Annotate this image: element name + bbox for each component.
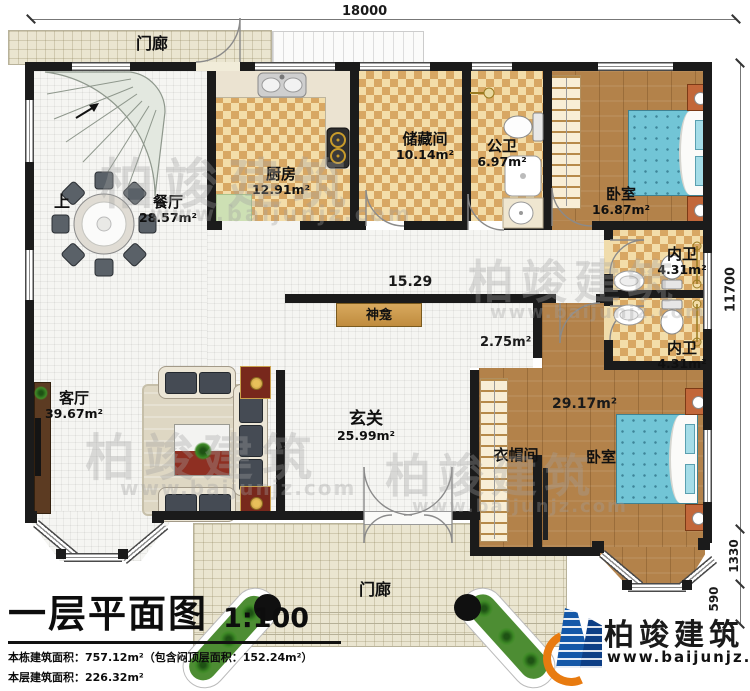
room-label-public-bath: 公卫 6.97m² bbox=[477, 138, 526, 169]
room-label-storage: 储藏间 10.14m² bbox=[396, 131, 454, 162]
dim-top-label: 18000 bbox=[338, 4, 391, 19]
dim-right-label: 11700 bbox=[724, 260, 739, 320]
door-porch-top bbox=[196, 18, 240, 62]
room-label-innerbath-top: 内卫 4.31m² bbox=[657, 246, 706, 277]
floor-plan-canvas: 神龛 bbox=[0, 0, 750, 691]
door-public-bath bbox=[468, 194, 504, 230]
door-entrance-left bbox=[364, 467, 412, 543]
door-entrance-right bbox=[404, 467, 452, 543]
stats-line-2: 本层建筑面积：226.32m² bbox=[8, 669, 353, 685]
public-bath-sink bbox=[503, 198, 543, 228]
room-label-dining: 餐厅 28.57m² bbox=[139, 194, 197, 225]
door-bedroom-top bbox=[552, 188, 592, 226]
door-storage bbox=[366, 190, 404, 226]
corridor-length-dim: 15.29 bbox=[388, 274, 432, 290]
door-bedroom-bottom bbox=[560, 303, 600, 343]
stair-direction-label: 上 bbox=[54, 193, 70, 211]
room-label-bedroom-bottom: 卧室 bbox=[586, 449, 616, 466]
title-underline bbox=[8, 641, 341, 644]
shower-head-icon bbox=[470, 88, 494, 98]
room-label-porch-top: 门廊 bbox=[136, 35, 168, 53]
room-label-foyer: 玄关 25.99m² bbox=[337, 410, 395, 443]
bedroom-bottom-area: 29.17m² bbox=[552, 396, 617, 412]
room-label-cloakroom: 衣帽间 bbox=[493, 447, 538, 464]
stats-line-1: 本栋建筑面积：757.12m²（包含闷顶层面积：152.24m²） bbox=[8, 649, 353, 665]
room-label-porch-bottom: 门廊 bbox=[359, 581, 391, 599]
title-block: 一层平面图 1:100 本栋建筑面积：757.12m²（包含闷顶层面积：152.… bbox=[8, 583, 353, 691]
dim-right-bay-label: 1330 bbox=[727, 526, 741, 586]
room-label-innerbath-bottom: 内卫 4.31m² bbox=[657, 340, 706, 371]
door-innerbath-top bbox=[610, 240, 644, 274]
brand-logo: 柏竣建筑 www.baijunjz.com bbox=[540, 606, 745, 686]
room-label-bedroom-top: 卧室 16.87m² bbox=[592, 186, 650, 217]
kitchen-sink bbox=[258, 73, 306, 97]
passage-area-dim: 2.75m² bbox=[480, 335, 531, 350]
cooktop bbox=[327, 128, 349, 168]
room-label-kitchen: 厨房 12.91m² bbox=[252, 166, 310, 197]
plan-scale: 1:100 bbox=[223, 603, 309, 634]
plan-title: 一层平面图 bbox=[8, 592, 208, 636]
room-label-living: 客厅 39.67m² bbox=[45, 390, 103, 421]
brand-website: www.baijunjz.com bbox=[607, 648, 750, 666]
